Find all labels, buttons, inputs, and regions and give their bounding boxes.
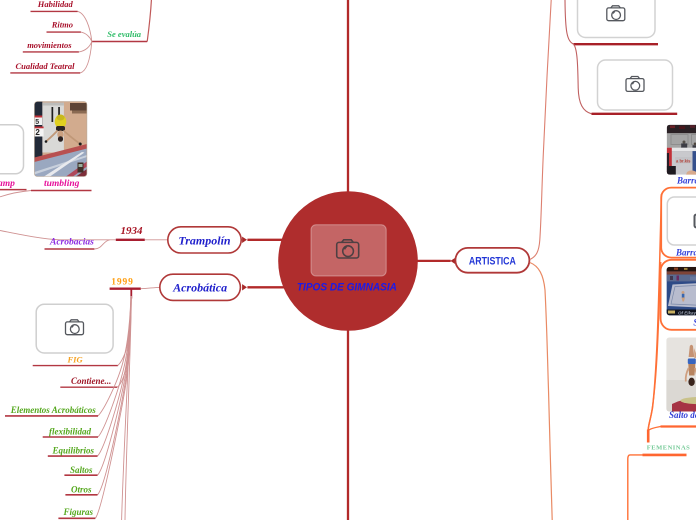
svg-text:Equilibrios: Equilibrios xyxy=(52,446,95,456)
svg-text:FEMENINAS: FEMENINAS xyxy=(647,444,691,451)
svg-text:Barra: Barra xyxy=(676,175,696,185)
svg-text:Acrobacias: Acrobacias xyxy=(49,238,94,248)
svg-text:Contiene...: Contiene... xyxy=(71,376,111,386)
svg-text:amp: amp xyxy=(0,179,15,189)
svg-text:flexibilidad: flexibilidad xyxy=(49,427,91,437)
svg-text:Trampolín: Trampolín xyxy=(178,233,231,247)
svg-text:Elementos Acrobáticos: Elementos Acrobáticos xyxy=(10,405,96,415)
svg-text:1999: 1999 xyxy=(111,277,134,287)
svg-text:Cualidad Teatral: Cualidad Teatral xyxy=(16,61,76,71)
svg-text:5: 5 xyxy=(35,119,39,126)
svg-text:tumbling: tumbling xyxy=(44,179,80,189)
svg-text:TIPOS DE GIMNASIA: TIPOS DE GIMNASIA xyxy=(297,281,397,293)
svg-text:Figuras: Figuras xyxy=(63,507,94,517)
svg-text:FIG: FIG xyxy=(67,355,84,365)
svg-text:Ritmo: Ritmo xyxy=(51,19,73,29)
svg-text:ARTISTICA: ARTISTICA xyxy=(469,255,516,267)
svg-text:a br.kis: a br.kis xyxy=(676,158,691,163)
svg-text:1934: 1934 xyxy=(121,225,144,237)
svg-text:Of Eikay: Of Eikay xyxy=(678,311,696,316)
svg-text:Acrobática: Acrobática xyxy=(172,281,227,295)
svg-text:Salto de p: Salto de p xyxy=(669,410,696,420)
svg-text:Habilidad: Habilidad xyxy=(37,0,74,9)
svg-text:2: 2 xyxy=(35,128,40,137)
svg-text:Otros: Otros xyxy=(71,484,92,494)
svg-text:Se evalúa: Se evalúa xyxy=(107,29,142,39)
svg-text:movimientos: movimientos xyxy=(27,40,72,50)
svg-text:Barras: Barras xyxy=(675,247,696,257)
svg-text:Saltos: Saltos xyxy=(70,465,93,475)
